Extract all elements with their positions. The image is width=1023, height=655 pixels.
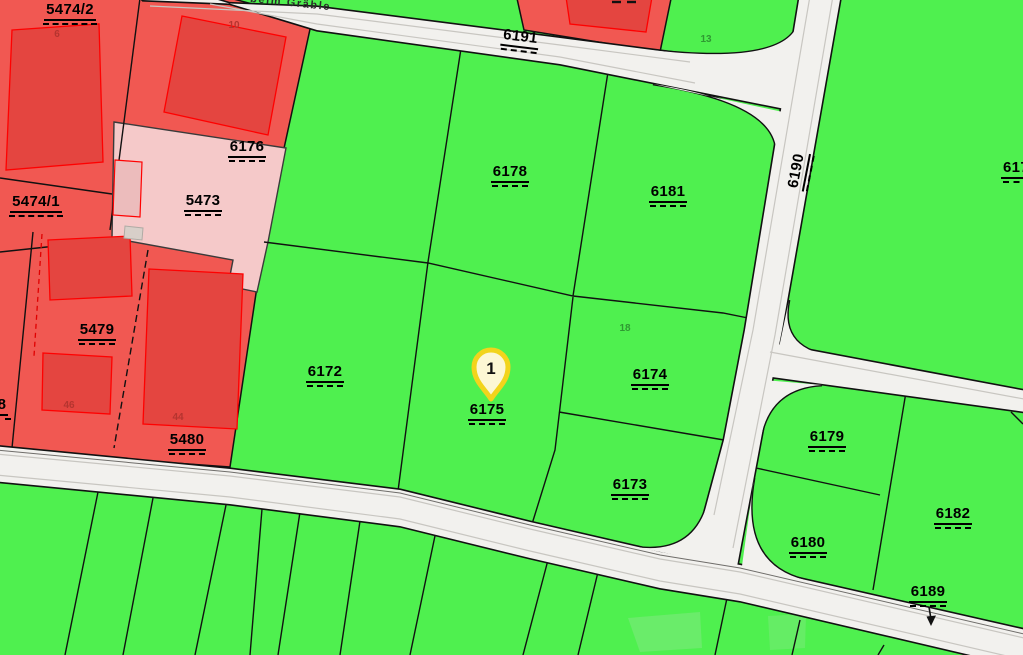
house-number-13: 13 xyxy=(700,35,711,45)
parcel-label-5474-1: 5474/1 xyxy=(0,194,91,217)
label-dashed-underline xyxy=(910,605,946,607)
parcel-number-text: 5480 xyxy=(168,432,207,451)
label-dashed-underline xyxy=(469,423,505,425)
parcel-number-text: 6174 xyxy=(631,367,670,386)
building-6 xyxy=(6,24,103,170)
label-dashed-underline xyxy=(0,418,11,420)
small-shed xyxy=(124,226,143,240)
parcel-number-text: 6180 xyxy=(789,535,828,554)
parcel-number-text: 5473 xyxy=(184,193,223,212)
parcel-number-text: 6178 xyxy=(491,164,530,183)
parcel-label-5479: 5479 xyxy=(42,322,152,345)
parcel-label-6178: 6178 xyxy=(455,164,565,187)
marker-number: 1 xyxy=(486,359,495,378)
parcel-label-6172: 6172 xyxy=(270,364,380,387)
parcel-label-6175: 6175 xyxy=(432,402,542,425)
house-number-46: 46 xyxy=(63,401,74,411)
parcel-label-6180: 6180 xyxy=(753,535,863,558)
parcel-number-text: 6181 xyxy=(649,184,688,203)
label-dashed-underline xyxy=(650,205,686,207)
label-dashed-underline xyxy=(935,527,971,529)
label-dashed-underline xyxy=(632,388,668,390)
label-dashed-underline xyxy=(307,385,343,387)
parcel-label-8: 8 xyxy=(0,397,57,420)
house-number-18: 18 xyxy=(619,324,630,334)
pink-building xyxy=(113,160,142,217)
field-patch xyxy=(628,612,702,652)
parcel-label-6181: 6181 xyxy=(613,184,723,207)
parcel-label-6173: 6173 xyxy=(575,477,685,500)
parcel-number-text: 617 xyxy=(1001,160,1023,179)
parcel-number-text: 5479 xyxy=(78,322,117,341)
house-number-44: 44 xyxy=(172,413,183,423)
label-dashed-underline xyxy=(169,453,205,455)
parcel-number-text: 6176 xyxy=(228,139,267,158)
parcel-number-text: 6175 xyxy=(468,402,507,421)
parcel-number-text: 6182 xyxy=(934,506,973,525)
parcel-number-text: 5474/2 xyxy=(44,2,96,21)
building-5479-upper xyxy=(48,236,132,300)
label-dashed-underline xyxy=(79,343,115,345)
parcel-label-6179: 6179 xyxy=(772,429,882,452)
parcel-label-6189: 6189 xyxy=(873,584,983,607)
field-patch xyxy=(768,614,806,650)
parcel-label-6182: 6182 xyxy=(898,506,1008,529)
label-dashed-underline xyxy=(185,214,221,216)
label-dashed-underline xyxy=(612,498,648,500)
parcel-label-617: 617 xyxy=(961,160,1023,183)
parcel-label-5473: 5473 xyxy=(148,193,258,216)
map-canvas[interactable]: 1 xyxy=(0,0,1023,655)
building-44 xyxy=(143,269,243,429)
label-dashed-underline xyxy=(492,185,528,187)
cadastral-map[interactable]: 1 beim Gräble 5474/25474/154735479548086… xyxy=(0,0,1023,655)
label-dashed-underline xyxy=(809,450,845,452)
parcel-number-text: 5474/1 xyxy=(10,194,62,213)
label-dashed-underline xyxy=(790,556,826,558)
parcel-number-text: 6189 xyxy=(909,584,948,603)
parcel-number-text: 6172 xyxy=(306,364,345,383)
parcel-label-6174: 6174 xyxy=(595,367,705,390)
parcel-number-text: 6173 xyxy=(611,477,650,496)
parcel-label-6176: 6176 xyxy=(192,139,302,162)
parcel-label-5474-2: 5474/2 xyxy=(15,2,125,25)
house-number-6: 6 xyxy=(54,30,60,40)
parcel-number-text: 6179 xyxy=(808,429,847,448)
label-dashed-underline xyxy=(229,160,265,162)
label-dashed-underline xyxy=(9,215,63,217)
parcel-label-5480: 5480 xyxy=(132,432,242,455)
label-dashed-underline xyxy=(1003,181,1023,183)
label-dashed-underline xyxy=(43,23,97,25)
house-number-10: 10 xyxy=(228,21,239,31)
parcel-number-text: 8 xyxy=(0,397,8,416)
